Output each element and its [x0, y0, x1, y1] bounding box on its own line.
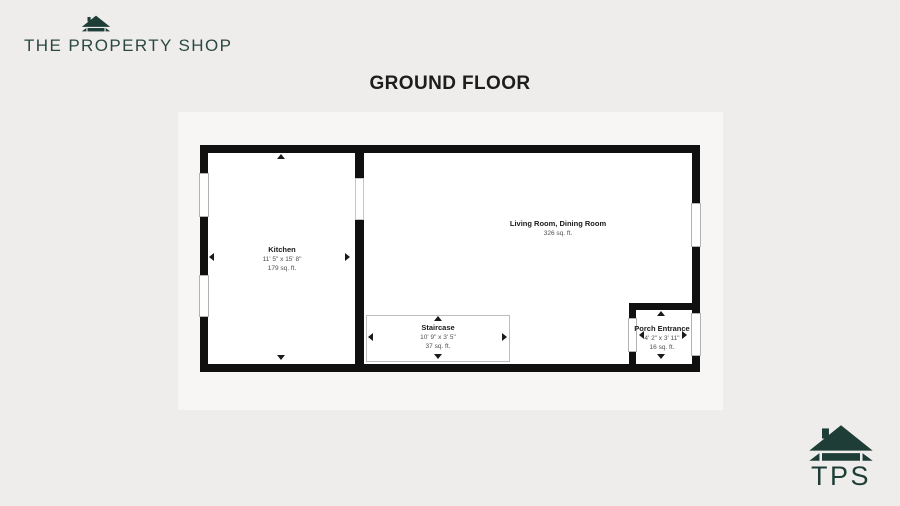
- room-dimensions: 11' 5" x 15' 8": [263, 255, 302, 264]
- dimension-marker: [277, 355, 285, 360]
- window-kitchen-left-lower: [199, 275, 209, 317]
- room-label-staircase: Staircase 10' 9" x 3' 5" 37 sq. ft.: [420, 323, 456, 351]
- room-name: Staircase: [420, 323, 456, 333]
- room-label-porch-entrance: Porch Entrance 4' 2" x 3' 11" 16 sq. ft.: [634, 324, 689, 352]
- room-area: 179 sq. ft.: [263, 264, 302, 273]
- dimension-marker: [657, 311, 665, 316]
- room-dimensions: 10' 9" x 3' 5": [420, 333, 456, 342]
- room-area: 326 sq. ft.: [510, 229, 606, 238]
- brand-name: THE PROPERTY SHOP: [24, 36, 232, 56]
- room-area: 37 sq. ft.: [420, 342, 456, 351]
- house-icon: [81, 15, 111, 32]
- page: THE PROPERTY SHOP GROUND FLOOR Kitchen 1…: [0, 0, 900, 506]
- porch-top-wall: [629, 303, 700, 310]
- room-label-kitchen: Kitchen 11' 5" x 15' 8" 179 sq. ft.: [263, 245, 302, 273]
- window-living-right: [691, 203, 701, 247]
- room-name: Kitchen: [263, 245, 302, 255]
- room-area: 16 sq. ft.: [634, 343, 689, 352]
- room-label-living-dining: Living Room, Dining Room 326 sq. ft.: [510, 219, 606, 238]
- dimension-marker: [345, 253, 350, 261]
- window-kitchen-left-upper: [199, 173, 209, 217]
- dimension-marker: [434, 354, 442, 359]
- room-dimensions: 4' 2" x 3' 11": [634, 334, 689, 343]
- room-name: Porch Entrance: [634, 324, 689, 334]
- room-name: Living Room, Dining Room: [510, 219, 606, 229]
- dimension-marker: [434, 316, 442, 321]
- floor-title: GROUND FLOOR: [0, 73, 900, 95]
- dimension-marker: [209, 253, 214, 261]
- dimension-marker: [502, 333, 507, 341]
- dimension-marker: [368, 333, 373, 341]
- dimension-marker: [277, 154, 285, 159]
- window-porch-right: [691, 313, 701, 356]
- opening-kitchen-living: [355, 178, 364, 220]
- dimension-marker: [657, 354, 665, 359]
- house-icon: [808, 424, 874, 462]
- tps-monogram: TPS: [806, 461, 876, 492]
